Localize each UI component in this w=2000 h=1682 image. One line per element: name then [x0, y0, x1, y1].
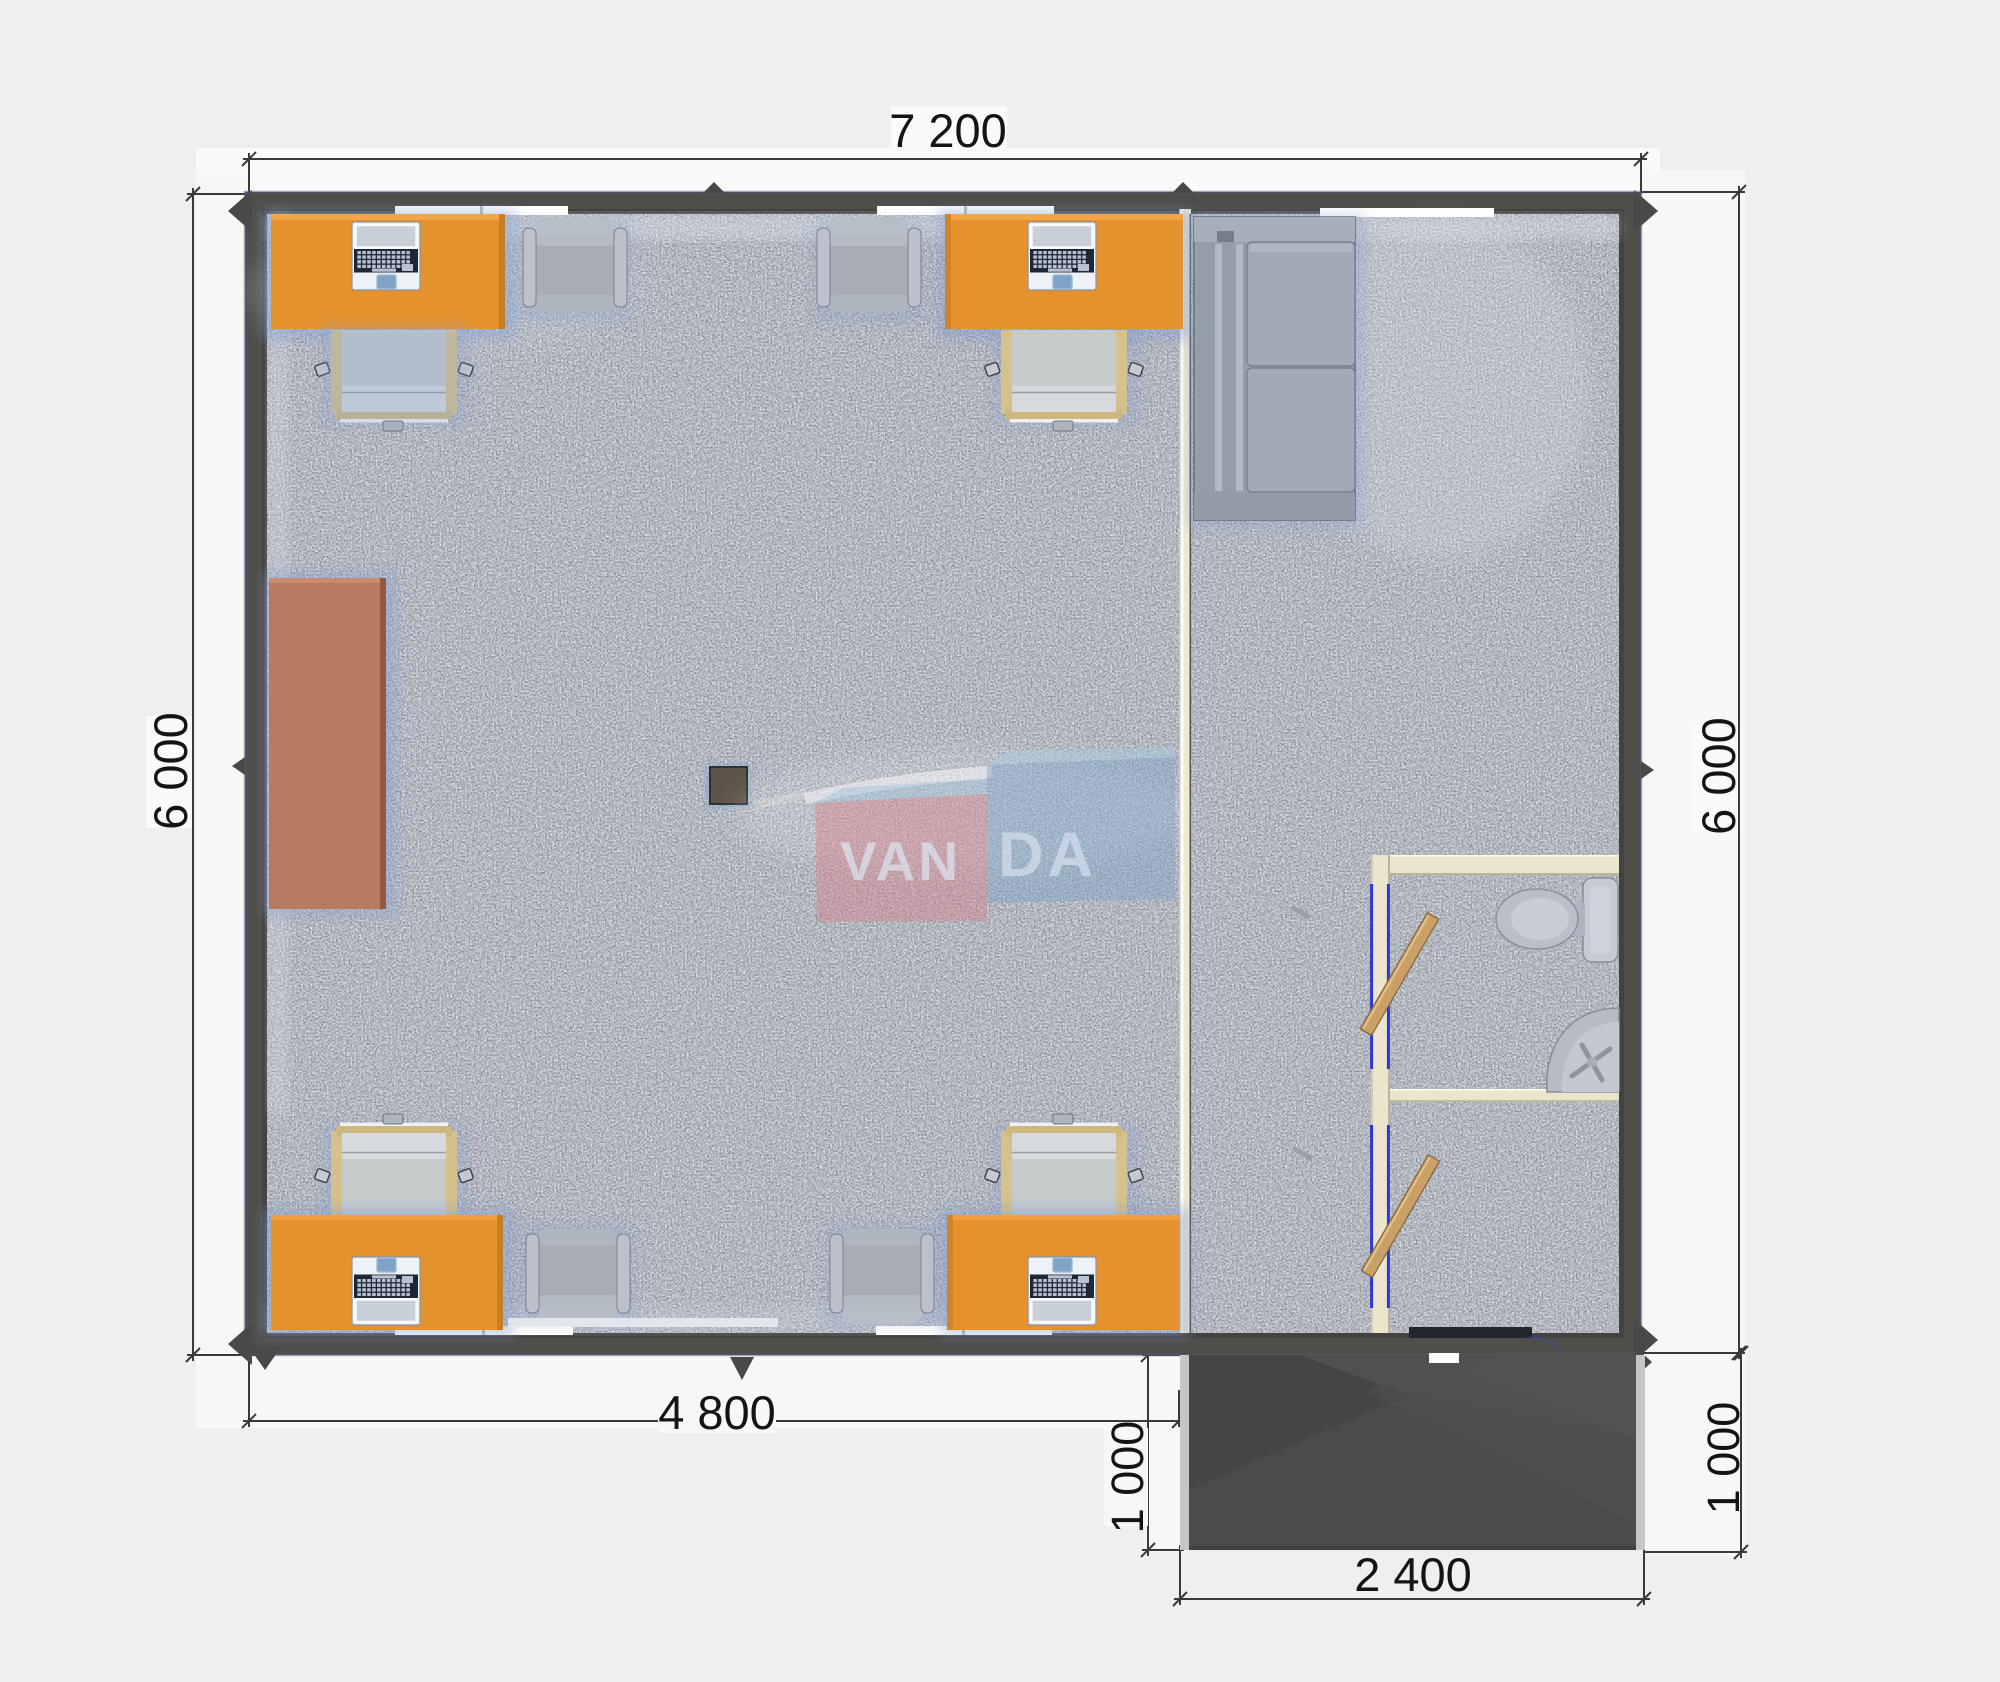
svg-text:VAN: VAN — [840, 830, 961, 892]
svg-text:6 000: 6 000 — [144, 712, 197, 830]
svg-text:4 800: 4 800 — [658, 1386, 776, 1439]
svg-text:7 200: 7 200 — [889, 104, 1007, 157]
svg-text:1 000: 1 000 — [1698, 1402, 1749, 1515]
svg-text:2 400: 2 400 — [1354, 1548, 1472, 1601]
svg-text:6 000: 6 000 — [1692, 717, 1745, 835]
svg-text:1 000: 1 000 — [1102, 1421, 1153, 1534]
svg-text:DA: DA — [998, 820, 1097, 890]
